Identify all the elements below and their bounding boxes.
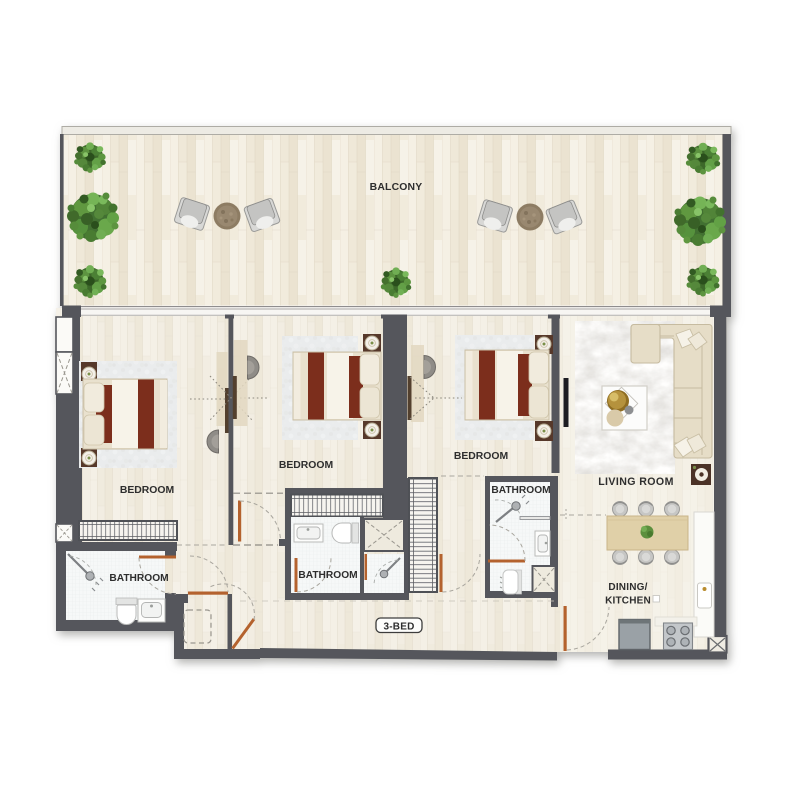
svg-text:BALCONY: BALCONY [370, 182, 423, 193]
svg-text:BEDROOM: BEDROOM [120, 485, 174, 496]
svg-text:LIVING ROOM: LIVING ROOM [598, 476, 674, 488]
svg-text:BEDROOM: BEDROOM [454, 451, 508, 462]
svg-text:3-BED: 3-BED [383, 622, 414, 633]
svg-text:BATHROOM: BATHROOM [109, 573, 168, 584]
svg-text:BATHROOM: BATHROOM [298, 570, 357, 581]
svg-text:BATHROOM: BATHROOM [491, 485, 550, 496]
svg-text:KITCHEN: KITCHEN [605, 596, 651, 607]
svg-text:BEDROOM: BEDROOM [279, 460, 333, 471]
svg-text:DINING/: DINING/ [608, 582, 647, 593]
